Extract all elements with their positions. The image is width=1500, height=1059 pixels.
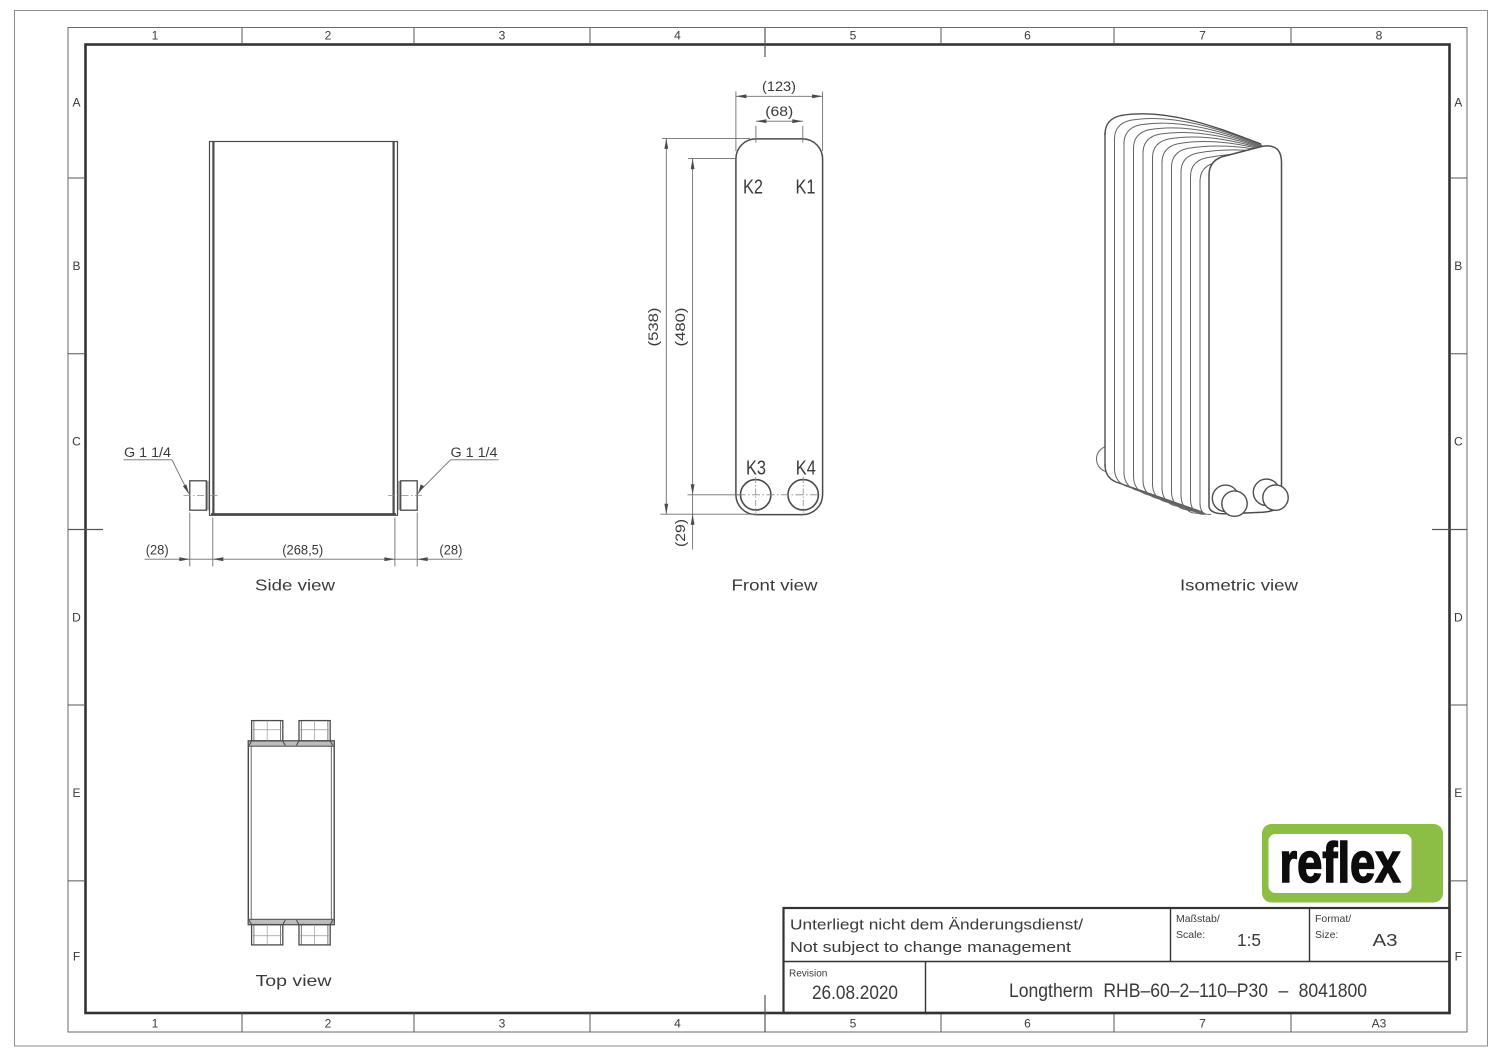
svg-text:Not subject to change manageme: Not subject to change management bbox=[790, 939, 1072, 956]
svg-text:E: E bbox=[72, 786, 80, 800]
svg-text:3: 3 bbox=[499, 1017, 506, 1031]
svg-text:Top view: Top view bbox=[256, 973, 333, 990]
svg-text:6: 6 bbox=[1024, 1017, 1031, 1031]
svg-text:6: 6 bbox=[1024, 29, 1031, 43]
svg-text:Maßstab/: Maßstab/ bbox=[1176, 913, 1220, 925]
svg-text:F: F bbox=[1455, 949, 1462, 963]
svg-text:G 1 1/4: G 1 1/4 bbox=[451, 445, 499, 460]
svg-text:(268,5): (268,5) bbox=[282, 543, 323, 558]
svg-text:Longtherm RHB–60–2–110–P30 – 8: Longtherm RHB–60–2–110–P30 – 8041800 bbox=[1009, 981, 1367, 1002]
svg-text:K4: K4 bbox=[796, 457, 816, 480]
svg-text:Side view: Side view bbox=[255, 578, 336, 595]
svg-text:(29): (29) bbox=[673, 519, 688, 547]
svg-text:(68): (68) bbox=[765, 104, 793, 119]
svg-text:26.08.2020: 26.08.2020 bbox=[812, 982, 898, 1004]
svg-text:B: B bbox=[1454, 259, 1462, 273]
svg-text:K1: K1 bbox=[796, 176, 816, 199]
svg-text:A: A bbox=[72, 96, 80, 110]
svg-text:5: 5 bbox=[850, 29, 857, 43]
svg-text:G 1 1/4: G 1 1/4 bbox=[124, 445, 172, 460]
svg-text:F: F bbox=[73, 949, 80, 963]
svg-text:4: 4 bbox=[674, 1017, 681, 1031]
svg-text:1: 1 bbox=[152, 29, 159, 43]
svg-text:4: 4 bbox=[674, 29, 681, 43]
svg-text:1: 1 bbox=[152, 1017, 159, 1031]
svg-text:K3: K3 bbox=[746, 457, 766, 480]
svg-text:5: 5 bbox=[850, 1017, 857, 1031]
svg-text:2: 2 bbox=[325, 1017, 332, 1031]
svg-text:3: 3 bbox=[499, 29, 506, 43]
svg-text:B: B bbox=[72, 259, 80, 273]
svg-text:C: C bbox=[72, 435, 81, 449]
svg-text:(123): (123) bbox=[762, 79, 796, 94]
svg-text:Format/: Format/ bbox=[1315, 913, 1351, 925]
svg-text:(538): (538) bbox=[646, 308, 661, 347]
svg-text:(28): (28) bbox=[439, 543, 462, 558]
svg-text:A: A bbox=[1454, 96, 1462, 110]
svg-text:D: D bbox=[1454, 610, 1463, 624]
svg-text:1:5: 1:5 bbox=[1237, 930, 1261, 950]
svg-text:(28): (28) bbox=[146, 543, 169, 558]
svg-text:A3: A3 bbox=[1372, 1017, 1387, 1031]
svg-text:K2: K2 bbox=[743, 176, 763, 199]
svg-text:C: C bbox=[1454, 435, 1463, 449]
svg-text:2: 2 bbox=[325, 29, 332, 43]
svg-text:E: E bbox=[1454, 786, 1462, 800]
svg-text:reflex: reflex bbox=[1280, 831, 1401, 895]
svg-text:8: 8 bbox=[1376, 29, 1383, 43]
svg-text:Isometric view: Isometric view bbox=[1180, 578, 1299, 595]
svg-text:(480): (480) bbox=[673, 308, 688, 347]
svg-text:Unterliegt nicht dem Änderungs: Unterliegt nicht dem Änderungsdienst/ bbox=[790, 917, 1084, 934]
svg-text:A3: A3 bbox=[1373, 930, 1398, 950]
svg-text:7: 7 bbox=[1199, 29, 1206, 43]
svg-text:Front view: Front view bbox=[732, 578, 819, 595]
svg-text:D: D bbox=[72, 610, 81, 624]
svg-text:Size:: Size: bbox=[1315, 929, 1338, 941]
svg-text:Scale:: Scale: bbox=[1176, 929, 1205, 941]
svg-text:7: 7 bbox=[1199, 1017, 1206, 1031]
svg-text:Revision: Revision bbox=[789, 969, 827, 980]
